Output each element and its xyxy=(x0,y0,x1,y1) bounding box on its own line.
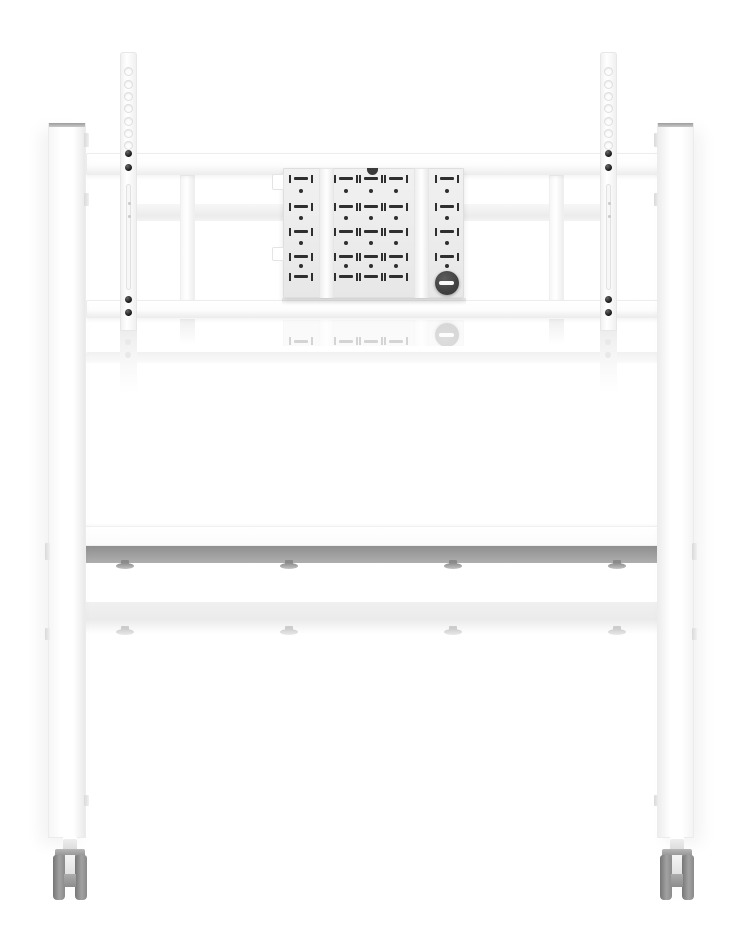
bracket-hole xyxy=(604,80,613,89)
shelf-foot xyxy=(280,560,298,570)
bracket-hole xyxy=(124,141,133,150)
locking-knob xyxy=(435,323,459,346)
vesa-hole xyxy=(299,189,303,193)
vesa-hole xyxy=(369,189,373,193)
bracket-screw xyxy=(605,150,612,157)
shelf-foot xyxy=(116,560,134,570)
vesa-hole xyxy=(369,264,373,268)
right-vesa-bracket xyxy=(600,52,617,331)
bracket-screw xyxy=(605,164,612,171)
left-post-reflection xyxy=(180,319,195,345)
leg-clip xyxy=(84,795,89,806)
foot-base xyxy=(608,629,626,635)
bracket-hole xyxy=(604,92,613,101)
leg-clip xyxy=(692,628,697,640)
vesa-slot xyxy=(359,202,383,211)
foot-base xyxy=(444,563,462,569)
shelf-feet-reflection xyxy=(0,626,750,638)
bracket-hole xyxy=(124,92,133,101)
left-bracket-reflection xyxy=(120,331,137,393)
vesa-slot xyxy=(435,252,459,261)
mounting-tab xyxy=(272,247,284,261)
leg-clip xyxy=(45,543,50,560)
leg-clip xyxy=(654,795,659,806)
vesa-hole xyxy=(445,264,449,268)
vesa-slot xyxy=(435,202,459,211)
vesa-hole xyxy=(394,216,398,220)
bracket-screw xyxy=(125,309,132,316)
mounting-tab xyxy=(272,174,284,190)
bracket-screw xyxy=(605,296,612,303)
right-caster-wheel xyxy=(660,836,694,902)
left-leg xyxy=(48,123,86,838)
vesa-hole xyxy=(394,264,398,268)
leg-clip xyxy=(654,133,659,147)
vesa-mounting-plate xyxy=(283,168,464,298)
vesa-hole xyxy=(445,216,449,220)
plate-divider xyxy=(319,168,334,299)
foot-base xyxy=(116,629,134,635)
caster-axle xyxy=(64,874,76,887)
shelf-foot xyxy=(444,560,462,570)
left-vesa-bracket xyxy=(120,52,137,331)
product-photo-tv-floor-stand xyxy=(0,0,750,926)
vesa-hole xyxy=(344,216,348,220)
slot-hole xyxy=(128,215,131,218)
bracket-screw xyxy=(125,150,132,157)
foot-base xyxy=(116,563,134,569)
bracket-screw xyxy=(125,164,132,171)
vesa-slot xyxy=(359,174,383,183)
caster-gap xyxy=(65,887,75,900)
vesa-slot xyxy=(289,174,313,183)
foot-base xyxy=(444,629,462,635)
vesa-slot xyxy=(334,272,358,281)
left-support-post xyxy=(180,175,195,301)
vesa-slot xyxy=(435,227,459,236)
shelf-foot xyxy=(280,626,298,636)
crossbar-reflection xyxy=(86,352,664,363)
vesa-slot xyxy=(359,272,383,281)
bracket-adjust-slot xyxy=(126,184,131,290)
right-bracket-reflection xyxy=(600,331,617,393)
caster-gap xyxy=(672,887,682,900)
leg-clip xyxy=(45,628,50,640)
vesa-hole xyxy=(299,241,303,245)
vesa-slot xyxy=(289,272,313,281)
vesa-hole xyxy=(369,216,373,220)
vesa-slot xyxy=(334,227,358,236)
foot-base xyxy=(280,629,298,635)
caster-fork xyxy=(65,855,75,875)
shelf-foot xyxy=(608,626,626,636)
caster-wheel-right xyxy=(682,855,694,900)
plate-divider xyxy=(319,320,334,346)
vesa-slot xyxy=(334,174,358,183)
right-leg xyxy=(657,123,694,838)
bracket-hole xyxy=(124,80,133,89)
vesa-hole xyxy=(369,241,373,245)
shelf-foot xyxy=(444,626,462,636)
left-caster-wheel xyxy=(53,836,87,902)
locking-knob xyxy=(435,271,459,295)
bracket-hole xyxy=(604,104,613,113)
leg-clip xyxy=(654,193,659,206)
right-support-post xyxy=(549,175,564,301)
vesa-slot xyxy=(384,227,408,236)
shelf-foot xyxy=(116,626,134,636)
bracket-adjust-slot xyxy=(606,184,611,290)
right-post-reflection xyxy=(549,319,564,345)
leg-clip xyxy=(84,193,89,206)
vesa-slot xyxy=(289,252,313,261)
vesa-slot xyxy=(334,337,358,346)
vesa-slot xyxy=(384,202,408,211)
plate-divider xyxy=(414,168,429,299)
bracket-hole xyxy=(604,141,613,150)
bracket-hole xyxy=(124,117,133,126)
caster-axle xyxy=(671,874,683,887)
vesa-slot xyxy=(384,174,408,183)
shelf-foot xyxy=(608,560,626,570)
caster-wheel-right xyxy=(75,855,87,900)
vesa-slot xyxy=(334,202,358,211)
bracket-hole xyxy=(124,129,133,138)
vesa-hole xyxy=(445,189,449,193)
leg-clip xyxy=(692,543,697,560)
plate-divider xyxy=(414,320,429,346)
vesa-slot xyxy=(289,337,313,346)
vesa-hole xyxy=(299,216,303,220)
slot-hole xyxy=(608,215,611,218)
vesa-hole xyxy=(344,189,348,193)
leg-clip xyxy=(84,133,89,147)
vesa-slot xyxy=(384,252,408,261)
bracket-hole xyxy=(124,104,133,113)
vesa-slot xyxy=(289,202,313,211)
bracket-hole xyxy=(124,67,133,76)
bracket-hole xyxy=(604,117,613,126)
vesa-hole xyxy=(394,241,398,245)
shelf-feet xyxy=(0,560,750,572)
bracket-hole xyxy=(604,129,613,138)
bracket-screw xyxy=(605,309,612,316)
vesa-hole xyxy=(445,241,449,245)
vesa-hole xyxy=(344,241,348,245)
vesa-hole xyxy=(299,264,303,268)
vesa-slot xyxy=(289,227,313,236)
vesa-slot xyxy=(384,337,408,346)
foot-base xyxy=(608,563,626,569)
vesa-slot xyxy=(435,174,459,183)
vesa-hole xyxy=(344,264,348,268)
bracket-screw xyxy=(125,296,132,303)
shelf-top-surface xyxy=(78,526,668,546)
vesa-slot xyxy=(359,227,383,236)
vesa-slot xyxy=(359,337,383,346)
vesa-slot xyxy=(359,252,383,261)
caster-fork xyxy=(672,855,682,875)
foot-base xyxy=(280,563,298,569)
vesa-slot xyxy=(334,252,358,261)
plate-reflection xyxy=(283,320,466,346)
vesa-hole xyxy=(394,189,398,193)
slot-hole xyxy=(128,202,131,205)
bracket-hole xyxy=(604,67,613,76)
vesa-slot xyxy=(384,272,408,281)
slot-hole xyxy=(608,202,611,205)
